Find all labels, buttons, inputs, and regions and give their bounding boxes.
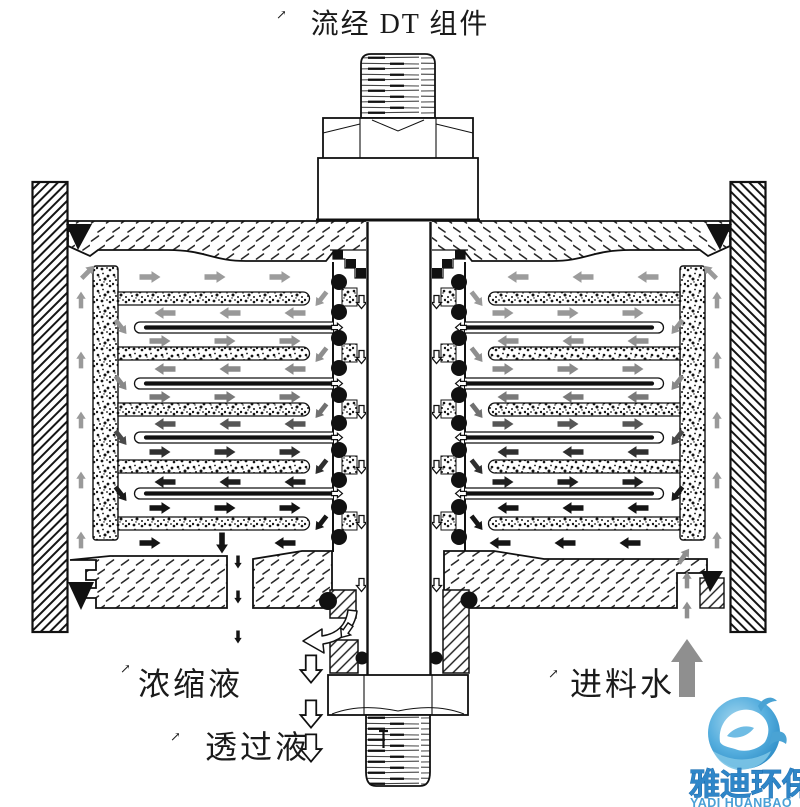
flow-turn-arrow [312, 457, 331, 477]
bottom-threaded-stud [366, 715, 430, 786]
permeate-label: 透过液 [205, 729, 310, 765]
flow-arrow [275, 537, 296, 549]
permeate-channel-arrow [357, 461, 367, 474]
flow-turn-arrow [312, 513, 331, 533]
flow-arrow [285, 363, 306, 375]
flow-arrow [280, 502, 301, 514]
flow-arrow [215, 446, 236, 458]
flow-arrow [555, 537, 576, 549]
flow-turn-arrow [312, 401, 331, 421]
permeate-arrow [301, 700, 322, 727]
figure-title: 流经 DT 组件 [311, 8, 490, 40]
o-ring [331, 499, 347, 515]
flow-turn-arrow [312, 289, 331, 309]
flow-arrow [215, 391, 236, 403]
flow-arrow [280, 335, 301, 347]
label-mark: ↗ [170, 729, 181, 744]
top-flange [318, 158, 478, 220]
feed-arrow [682, 602, 691, 619]
flow-arrow [285, 418, 306, 430]
collector-spacer [342, 344, 357, 362]
flow-arrow [215, 335, 236, 347]
flow-arrow [285, 476, 306, 488]
feed-rise-arrow [76, 412, 85, 429]
feed-label: 进料水 [570, 666, 675, 702]
logo-text-en: YADI HUANBAO [690, 796, 792, 807]
shell-wall [33, 182, 68, 632]
bottom-plate-right [444, 551, 707, 608]
flow-arrow [205, 271, 226, 283]
permeate-arrow [301, 655, 322, 682]
flow-arrow [215, 502, 236, 514]
flow-turn-arrow [312, 345, 331, 365]
feed-rise-arrow [76, 292, 85, 309]
flow-arrow [216, 533, 228, 554]
dt-module-figure: 流经 DT 组件 ↗ 浓缩液 ↗ 透过液 ↗ 进料水 ↗ 雅迪环保 YADI H… [0, 0, 800, 807]
central-shaft [366, 220, 432, 676]
collector-spacer [342, 400, 357, 418]
flow-arrow [220, 476, 241, 488]
flow-arrow [150, 446, 171, 458]
o-ring [331, 442, 347, 458]
permeate-channel-arrow [357, 351, 367, 364]
seal-block [333, 250, 343, 259]
spacer-bar [118, 347, 310, 360]
seal-block [356, 268, 366, 278]
spacer-bar [118, 517, 310, 530]
flow-arrow [220, 418, 241, 430]
o-ring [461, 592, 478, 609]
top-hex-nut [323, 118, 473, 160]
top-end-plate [68, 221, 367, 261]
flow-arrow [150, 502, 171, 514]
spacer-bar [118, 460, 310, 473]
flow-arrow [150, 391, 171, 403]
seal-block [346, 259, 356, 268]
top-threaded-stud [361, 54, 435, 118]
flow-arrow [220, 307, 241, 319]
o-ring [331, 529, 347, 545]
permeate-channel-arrow [357, 296, 367, 309]
o-ring [331, 330, 347, 346]
concentrate-arrow [234, 555, 241, 568]
o-ring [331, 360, 347, 376]
o-ring [331, 304, 347, 320]
flow-arrow [280, 446, 301, 458]
permeate-channel-arrow [357, 516, 367, 529]
yadi-logo: 雅迪环保 YADI HUANBAO [689, 697, 800, 807]
flow-arrow [285, 307, 306, 319]
collector-spacer [342, 288, 357, 306]
o-ring [331, 472, 347, 488]
spacer-bar [118, 403, 309, 416]
flow-arrow [155, 476, 176, 488]
o-ring [356, 652, 369, 665]
concentrate-arrow [234, 590, 241, 603]
flow-arrow [155, 307, 176, 319]
flow-arrow [155, 418, 176, 430]
feed-rise-arrow [76, 532, 85, 549]
flow-arrow [150, 335, 171, 347]
permeate-channel-arrow [357, 406, 367, 419]
flow-arrow [140, 537, 161, 549]
lower-collar [330, 640, 358, 673]
flow-arrow [270, 271, 291, 283]
permeate-channel-arrow [357, 579, 367, 592]
flow-arrow [140, 271, 161, 283]
spacer-bar [118, 292, 310, 305]
label-mark: ↗ [276, 7, 287, 22]
feed-arrow-large [671, 639, 703, 697]
feed-arrow [682, 572, 691, 589]
label-mark: ↗ [120, 661, 131, 676]
o-ring [319, 592, 337, 610]
flow-arrow [490, 537, 511, 549]
collector-spacer [342, 512, 357, 530]
concentrate-arrow [234, 630, 241, 643]
feed-rise-arrow [76, 352, 85, 369]
support-column [93, 266, 118, 540]
dt-module-diagram: 流经 DT 组件 ↗ 浓缩液 ↗ 透过液 ↗ 进料水 ↗ 雅迪环保 YADI H… [0, 0, 800, 807]
collector-spacer [342, 456, 357, 474]
concentrate-label: 浓缩液 [138, 666, 243, 702]
o-ring [430, 652, 443, 665]
o-ring [331, 274, 347, 290]
flow-arrow [620, 537, 641, 549]
o-ring [331, 415, 347, 431]
flow-arrow [155, 363, 176, 375]
flow-arrow [280, 391, 301, 403]
o-ring [331, 387, 347, 403]
feed-rise-arrow [76, 472, 85, 489]
flow-arrow [220, 363, 241, 375]
label-mark: ↗ [548, 666, 559, 681]
